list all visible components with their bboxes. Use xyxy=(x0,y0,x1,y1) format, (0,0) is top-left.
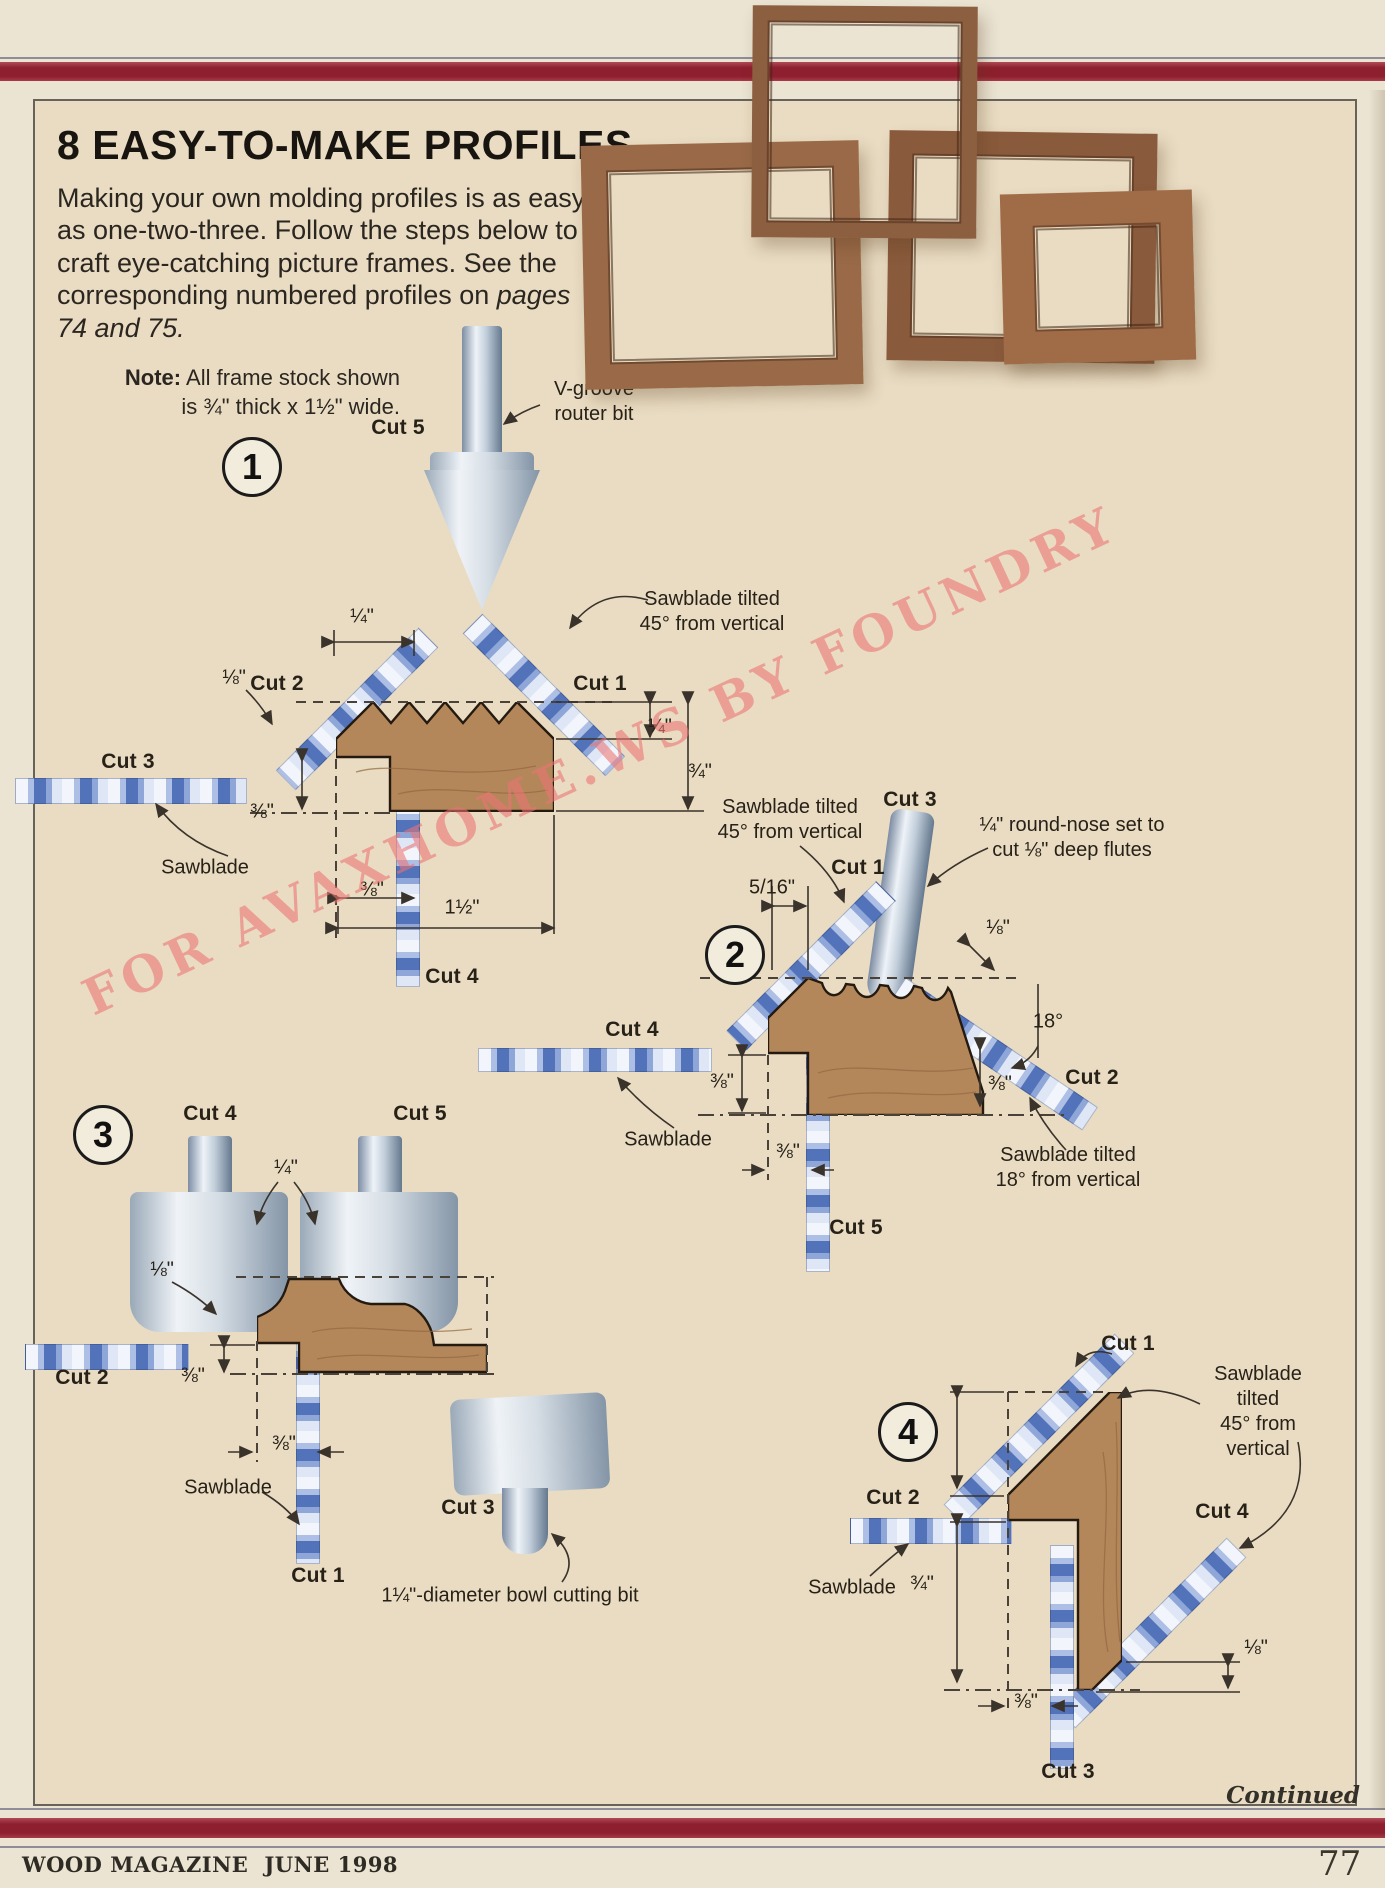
diagram-2-number: 2 xyxy=(705,925,765,985)
picture-frame-thin xyxy=(751,5,978,239)
magazine-page: 8 EASY-TO-MAKE PROFILES Making your own … xyxy=(0,0,1385,1888)
footer-page-number: 77 xyxy=(1318,1844,1361,1884)
bottom-red-bar xyxy=(0,1818,1385,1838)
footer-magazine-credit: WOOD MAGAZINEJUNE 1998 xyxy=(22,1852,398,1877)
bottom-hairline-rule-1 xyxy=(0,1808,1385,1810)
continued-label: Continued xyxy=(1150,1782,1360,1809)
picture-frame-small xyxy=(1000,190,1196,365)
bottom-hairline-rule-2 xyxy=(0,1846,1385,1848)
diagram-1-number: 1 xyxy=(222,437,282,497)
page-scan-edge xyxy=(1369,90,1385,1810)
diagram-3-number: 3 xyxy=(73,1105,133,1165)
diagram-4-number: 4 xyxy=(878,1402,938,1462)
